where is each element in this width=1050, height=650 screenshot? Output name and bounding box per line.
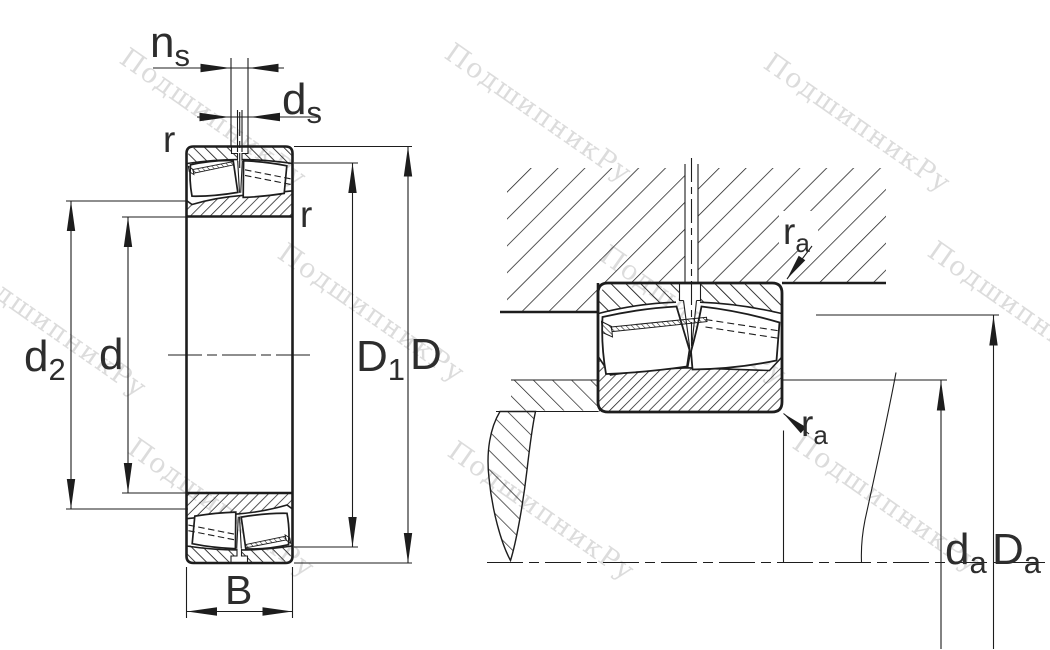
- bearing-technical-drawing: ПодшипникРу ПодшипникРу ПодшипникРу Подш…: [0, 0, 1050, 650]
- mounted-bearing-section: [598, 283, 782, 412]
- technical-drawing-page: ПодшипникРу ПодшипникРу ПодшипникРу Подш…: [0, 0, 1050, 650]
- dim-label-B: B: [225, 567, 252, 613]
- bearing-mounting-view: ra ra da Da: [487, 158, 1045, 649]
- watermark-text: ПодшипникРу: [439, 37, 638, 189]
- watermark-text: ПодшипникРу: [922, 235, 1050, 387]
- dim-label-da: da: [945, 525, 987, 580]
- dim-label-ns: ns: [150, 18, 190, 73]
- watermark-text: ПодшипникРу: [0, 252, 153, 404]
- watermark-text: ПодшипникРу: [442, 435, 641, 587]
- dim-label-ds: ds: [282, 75, 322, 130]
- dim-label-r-top: r: [163, 119, 175, 160]
- shaft-break-curve: [861, 373, 896, 563]
- dim-label-r-right: r: [300, 194, 312, 235]
- dim-label-D: D: [410, 330, 442, 379]
- dim-label-Da: Da: [992, 525, 1042, 580]
- dim-label-ra-bottom: ra: [801, 403, 828, 450]
- dim-label-d: d: [99, 330, 123, 379]
